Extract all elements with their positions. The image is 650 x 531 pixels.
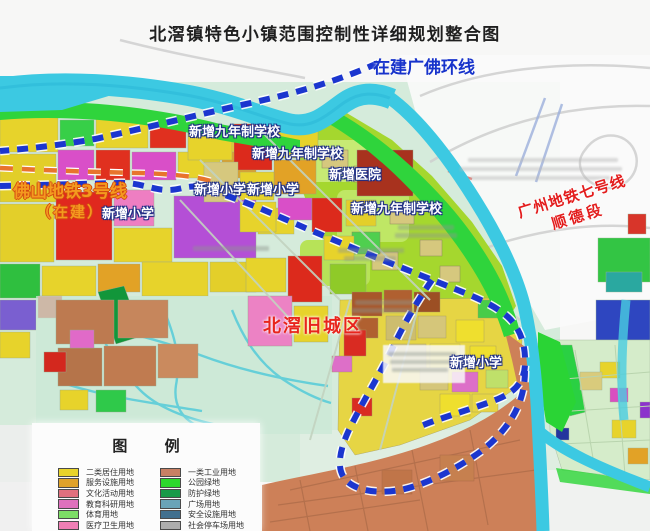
legend-row: 防护绿地: [160, 488, 244, 499]
metro3-label-line1: 佛山地铁3号线: [0, 182, 140, 203]
annotation-blur: [470, 176, 610, 180]
legend-label: 教育科研用地: [86, 499, 134, 510]
legend-swatch: [160, 499, 181, 509]
legend-label: 公园绿地: [188, 477, 220, 488]
legend-row: 社会停车场用地: [160, 520, 244, 531]
annotation-blur: [468, 158, 618, 162]
legend-swatch: [160, 521, 181, 531]
legend-swatch: [160, 478, 181, 488]
legend-row: 一类工业用地: [160, 467, 244, 478]
new-primary-label-2: 新增小学: [247, 179, 299, 198]
legend-row: 教育科研用地: [58, 499, 134, 510]
legend-row: 二类居住用地: [58, 467, 134, 478]
legend-row: 公园绿地: [160, 478, 244, 489]
annotation-blur: [392, 368, 448, 372]
new-school-label-2: 新增九年制学校: [252, 143, 343, 162]
new-hospital-label: 新增医院: [329, 164, 381, 183]
legend-row: 医疗卫生用地: [58, 520, 134, 531]
legend-title: 图 例: [32, 435, 260, 456]
legend-swatch: [160, 468, 181, 478]
annotation-blur: [390, 360, 452, 364]
legend-row: 服务设施用地: [58, 478, 134, 489]
ring-line-label: 在建广佛环线: [373, 53, 475, 78]
legend-swatch: [58, 499, 79, 509]
legend-row: 广场用地: [160, 499, 244, 510]
annotation-blur: [338, 248, 404, 253]
legend-row: 文化活动用地: [58, 488, 134, 499]
legend-label: 服务设施用地: [86, 477, 134, 488]
annotation-blur: [388, 352, 456, 356]
annotation-blur: [355, 300, 413, 305]
legend-swatch: [58, 521, 79, 531]
new-school-label-3: 新增九年制学校: [351, 198, 442, 217]
planning-map-screenshot: 北滘镇特色小镇范围控制性详细规划整合图 在建广佛环线 佛山地铁3号线 （在建） …: [0, 0, 650, 531]
legend-swatch: [58, 510, 79, 520]
legend-label: 社会停车场用地: [188, 520, 244, 531]
old-town-label: 北滘旧城区: [263, 312, 363, 338]
page-title: 北滘镇特色小镇范围控制性详细规划整合图: [0, 20, 650, 45]
legend-label: 安全设施用地: [188, 509, 236, 520]
legend-label: 一类工业用地: [188, 467, 236, 478]
legend-column-left: 二类居住用地 服务设施用地 文化活动用地 教育科研用地 体育用地 医疗卫生用地: [58, 467, 134, 531]
legend-label: 文化活动用地: [86, 488, 134, 499]
legend-panel: 图 例 二类居住用地 服务设施用地 文化活动用地 教育科研用地 体育用地 医疗卫…: [32, 423, 260, 531]
annotation-blur: [460, 167, 622, 171]
legend-swatch: [58, 489, 79, 499]
legend-row: 体育用地: [58, 509, 134, 520]
legend-swatch: [58, 468, 79, 478]
legend-label: 二类居住用地: [86, 467, 134, 478]
new-primary-label-4: 新增小学: [450, 352, 502, 371]
legend-label: 广场用地: [188, 499, 220, 510]
legend-label: 医疗卫生用地: [86, 520, 134, 531]
legend-swatch: [160, 489, 181, 499]
annotation-blur: [193, 246, 269, 251]
annotation-blur: [344, 256, 396, 261]
legend-swatch: [58, 478, 79, 488]
annotation-blur: [395, 233, 457, 238]
new-primary-label-1: 新增小学: [194, 179, 246, 198]
annotation-blur: [398, 225, 454, 230]
legend-label: 体育用地: [86, 509, 118, 520]
new-primary-label-3: 新增小学: [102, 203, 154, 222]
legend-column-right: 一类工业用地 公园绿地 防护绿地 广场用地 安全设施用地 社会停车场用地: [160, 467, 244, 531]
legend-label: 防护绿地: [188, 488, 220, 499]
new-school-label-1: 新增九年制学校: [189, 121, 280, 140]
legend-row: 安全设施用地: [160, 509, 244, 520]
legend-swatch: [160, 510, 181, 520]
